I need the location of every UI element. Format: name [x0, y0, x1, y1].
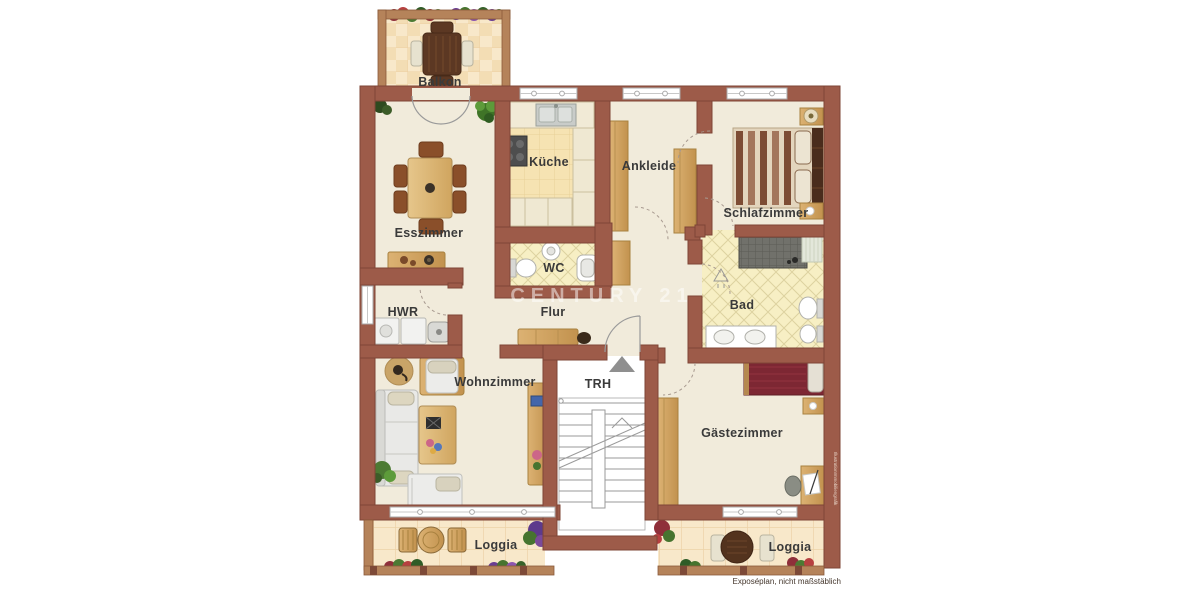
shower — [739, 236, 807, 268]
room-label-esszimmer: Esszimmer — [395, 226, 464, 240]
room-label-trh: TRH — [585, 377, 612, 391]
hall-bench — [518, 329, 578, 345]
hall-cabinet — [612, 241, 630, 285]
room-label-schlafzimmer: Schlafzimmer — [724, 206, 809, 220]
room-label-gaestezimmer: Gästezimmer — [701, 426, 783, 440]
floorplan-page: Balkon Esszimmer Küche Ankleide Schlafzi… — [0, 0, 1200, 600]
round-rug-with-cat — [385, 357, 413, 385]
window-living-room — [390, 507, 555, 517]
window-closet — [623, 88, 680, 99]
room-label-wc: WC — [543, 261, 564, 275]
watermark-century21: CENTURY 21 — [510, 285, 693, 307]
room-label-wohnzimmer: Wohnzimmer — [454, 375, 535, 389]
room-label-loggia-left: Loggia — [475, 538, 519, 552]
bedroom-bed — [733, 128, 823, 208]
window-hwr — [362, 286, 373, 324]
hall-shoes — [577, 332, 591, 344]
coffee-table — [419, 406, 456, 464]
toilet — [799, 297, 817, 319]
illustration-credit: IllustrationImmobiliengrafik — [833, 452, 838, 506]
room-label-kueche: Küche — [529, 155, 569, 169]
window-bedroom — [727, 88, 787, 99]
guest-wardrobe — [658, 398, 678, 508]
bidet — [800, 325, 816, 343]
room-label-loggia-right: Loggia — [769, 540, 813, 554]
floorplan-drawing: Balkon Esszimmer Küche Ankleide Schlafzi… — [0, 0, 1200, 600]
balcony-door-opening — [412, 88, 470, 100]
room-label-bad: Bad — [730, 298, 755, 312]
window-kitchen — [520, 88, 577, 99]
laundry-appliances — [374, 318, 450, 344]
room-label-ankleide: Ankleide — [622, 159, 677, 173]
dining-sideboard — [388, 252, 445, 269]
room-label-flur: Flur — [541, 305, 566, 319]
window-guest-room — [723, 507, 797, 517]
room-label-balkon: Balkon — [418, 75, 461, 89]
footer-disclaimer: Exposéplan, nicht maßstäblich — [733, 577, 842, 586]
room-label-hwr: HWR — [388, 305, 419, 319]
